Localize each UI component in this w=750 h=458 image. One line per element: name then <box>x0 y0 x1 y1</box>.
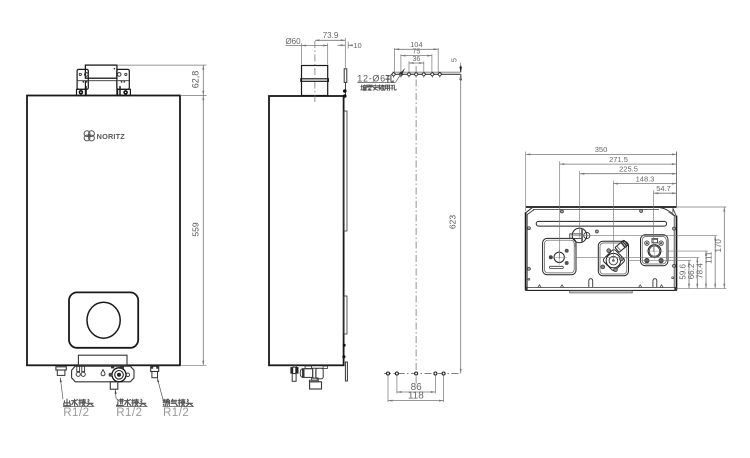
svg-text:62,8: 62,8 <box>191 71 201 89</box>
svg-text:225.5: 225.5 <box>619 165 638 174</box>
svg-text:54.7: 54.7 <box>656 184 671 193</box>
svg-text:12-Ø6: 12-Ø6 <box>357 73 386 83</box>
svg-text:350: 350 <box>595 145 608 154</box>
svg-text:66.2: 66.2 <box>687 263 696 279</box>
svg-text:559: 559 <box>191 222 201 236</box>
svg-text:R1/2: R1/2 <box>163 407 189 419</box>
svg-text:111: 111 <box>704 251 713 264</box>
svg-text:118: 118 <box>408 390 424 401</box>
svg-text:104: 104 <box>410 40 423 49</box>
svg-text:623: 623 <box>448 215 458 229</box>
svg-text:Ø60: Ø60 <box>285 37 301 46</box>
svg-text:148.3: 148.3 <box>636 174 655 183</box>
svg-text:R1/2: R1/2 <box>63 407 89 419</box>
svg-text:R1/2: R1/2 <box>116 407 142 419</box>
svg-text:170: 170 <box>714 239 723 253</box>
svg-text:73.9: 73.9 <box>323 31 339 40</box>
svg-text:NORITZ: NORITZ <box>97 132 126 141</box>
svg-text:271.5: 271.5 <box>609 155 628 164</box>
svg-text:10: 10 <box>353 41 361 50</box>
svg-text:36: 36 <box>413 56 421 63</box>
svg-text:78.4: 78.4 <box>696 263 705 279</box>
svg-text:5: 5 <box>450 58 459 62</box>
